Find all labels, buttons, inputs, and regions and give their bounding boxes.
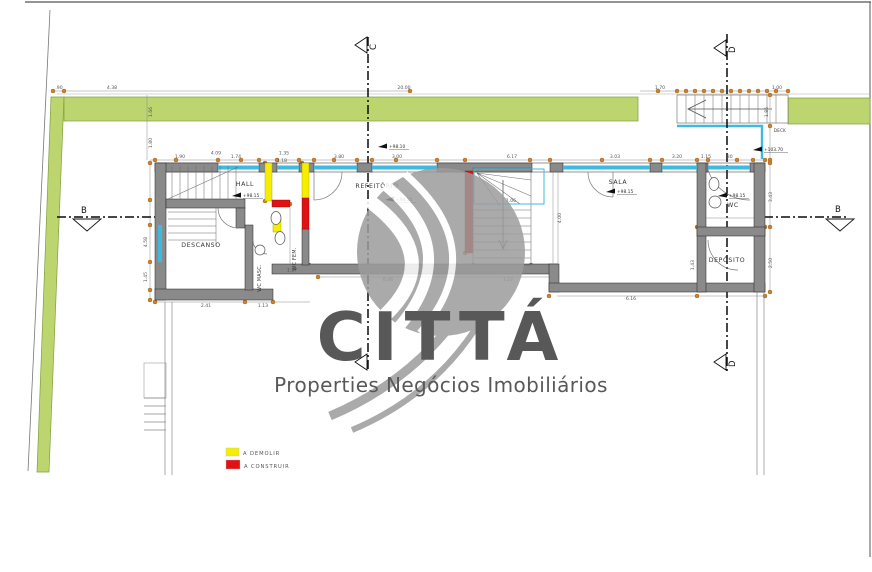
svg-text:2.50: 2.50 bbox=[768, 258, 774, 268]
bottom-wall-right bbox=[549, 283, 765, 292]
svg-text:1.80: 1.80 bbox=[148, 138, 154, 148]
room-label-deposito: DEPÓSITO bbox=[709, 255, 745, 264]
room-label-wc: WC bbox=[727, 202, 739, 209]
hall-wall bbox=[166, 199, 245, 208]
room-label-hall: HALL bbox=[236, 181, 254, 188]
room-label-descanso: DESCANSO bbox=[181, 242, 220, 249]
svg-text:1.18: 1.18 bbox=[277, 158, 287, 164]
svg-text:1.85: 1.85 bbox=[764, 107, 770, 117]
svg-text:3.80: 3.80 bbox=[334, 154, 344, 160]
legend-demolish-label: A DEMOLIR bbox=[243, 451, 280, 457]
legend-construct-swatch bbox=[226, 460, 240, 469]
svg-text:4.09: 4.09 bbox=[211, 151, 221, 157]
svg-text:1.70: 1.70 bbox=[655, 85, 665, 91]
svg-text:3.00: 3.00 bbox=[392, 154, 402, 160]
level-deck: +103.70 bbox=[753, 147, 788, 154]
section-marker-c-top bbox=[355, 37, 367, 53]
svg-text:1.35: 1.35 bbox=[279, 151, 289, 157]
svg-text:1.13: 1.13 bbox=[258, 303, 268, 309]
green-strip-left bbox=[37, 97, 64, 472]
svg-text:+98.10: +98.10 bbox=[389, 144, 405, 150]
svg-text:.90: .90 bbox=[55, 85, 62, 91]
green-strip-top-right bbox=[788, 98, 870, 124]
svg-text:4.38: 4.38 bbox=[107, 85, 117, 91]
svg-text:6.16: 6.16 bbox=[626, 296, 636, 302]
svg-text:4.00: 4.00 bbox=[557, 213, 563, 223]
svg-text:6.17: 6.17 bbox=[507, 154, 517, 160]
legend: A DEMOLIR A CONSTRUIR bbox=[226, 448, 290, 470]
svg-text:1.43: 1.43 bbox=[690, 260, 696, 270]
wc-left-wall bbox=[245, 225, 253, 290]
legend-demolish-swatch bbox=[226, 448, 239, 456]
svg-text:.80: .80 bbox=[725, 154, 732, 160]
room-label-wc-fem: WC FEM. bbox=[292, 247, 298, 270]
svg-text:+98.15: +98.15 bbox=[243, 193, 259, 199]
floor-plan-sheet: C D D B B bbox=[0, 0, 872, 572]
svg-text:1.66: 1.66 bbox=[148, 107, 154, 117]
legend-construct-label: A CONSTRUIR bbox=[244, 464, 290, 470]
svg-text:20.00: 20.00 bbox=[397, 85, 410, 91]
svg-text:3.03: 3.03 bbox=[610, 154, 620, 160]
room-label-wc-masc: WC MASC. bbox=[257, 264, 263, 291]
section-letter-d-top: D bbox=[728, 46, 738, 53]
watermark-brand: CITTÁ bbox=[317, 297, 566, 376]
svg-text:3.43: 3.43 bbox=[768, 192, 774, 202]
level-wc: +98.15 bbox=[718, 193, 749, 200]
svg-text:+98.15: +98.15 bbox=[729, 193, 745, 199]
section-marker-b-right bbox=[826, 219, 854, 231]
svg-text:1.15: 1.15 bbox=[701, 154, 711, 160]
svg-text:3.20: 3.20 bbox=[672, 154, 682, 160]
deck-edge bbox=[677, 126, 762, 159]
section-letter-d-bottom: D bbox=[728, 360, 738, 367]
svg-text:1.45: 1.45 bbox=[143, 272, 149, 282]
level-front: +98.10 bbox=[378, 144, 409, 151]
svg-text:1.90: 1.90 bbox=[175, 154, 185, 160]
exterior-stair bbox=[677, 95, 788, 123]
section-marker-b-left bbox=[73, 219, 101, 231]
svg-text:+103.70: +103.70 bbox=[764, 147, 783, 153]
section-letter-c-top: C bbox=[369, 44, 379, 50]
level-sala: +98.15 bbox=[606, 189, 637, 196]
svg-text:4.58: 4.58 bbox=[143, 237, 149, 247]
label-deck: DECK bbox=[774, 128, 786, 133]
section-letter-b-right: B bbox=[835, 205, 841, 215]
svg-text:+98.15: +98.15 bbox=[617, 189, 633, 195]
room-label-sala: SALA bbox=[609, 179, 628, 186]
svg-text:2.41: 2.41 bbox=[201, 303, 211, 309]
wc-deposito-wall bbox=[697, 227, 765, 236]
section-marker-d-top bbox=[714, 40, 726, 56]
svg-text:1.00: 1.00 bbox=[772, 85, 782, 91]
section-marker-d-bottom bbox=[714, 354, 726, 370]
watermark-tagline: Properties Negócios Imobiliários bbox=[274, 373, 608, 397]
level-hall: +98.15 bbox=[232, 193, 263, 200]
svg-text:1.74: 1.74 bbox=[231, 154, 241, 160]
section-letter-b-left: B bbox=[81, 206, 87, 216]
bottom-wall-left bbox=[155, 289, 273, 300]
floor-plan-drawing: C D D B B bbox=[0, 0, 872, 572]
